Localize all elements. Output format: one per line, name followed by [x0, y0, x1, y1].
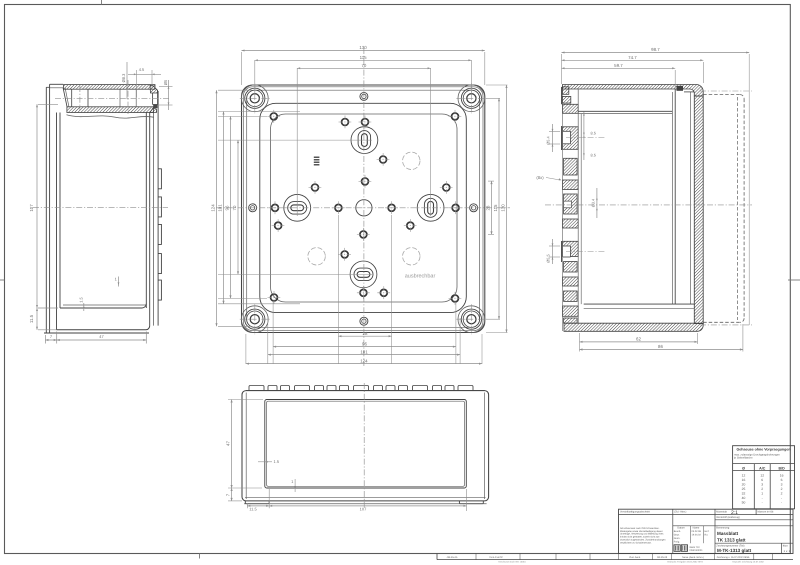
svg-text:40: 40 — [742, 496, 746, 500]
svg-text:druecklich zugestanden. Zuwide: druecklich zugestanden. Zuwiderhandlunge… — [620, 538, 666, 541]
svg-text:B/D: B/D — [778, 466, 785, 470]
svg-text:verpflichten zu Schadenersatz.: verpflichten zu Schadenersatz. — [620, 541, 652, 544]
svg-text:74.7: 74.7 — [628, 55, 637, 60]
svg-text:1.5: 1.5 — [78, 296, 83, 302]
svg-text:(Zul.-Abw.): (Zul.-Abw.) — [674, 511, 686, 514]
svg-text:JW-45x15: JW-45x15 — [657, 556, 668, 559]
svg-text:12: 12 — [760, 473, 764, 477]
svg-text:Zeichnungsnummer (Teil): Zeichnungsnummer (Teil) — [716, 544, 744, 547]
svg-text:4.5: 4.5 — [139, 67, 145, 72]
svg-text:19.04.02: 19.04.02 — [692, 534, 702, 537]
svg-text:124: 124 — [360, 358, 368, 363]
svg-text:16: 16 — [780, 473, 784, 477]
svg-text:2: 2 — [781, 492, 783, 496]
svg-text:62: 62 — [636, 337, 641, 342]
svg-text:Zeichnung v. 16.07.2002 08/56: Zeichnung v. 16.07.2002 08/56 — [717, 556, 750, 559]
svg-text:Massen in t/St: Massen in t/St — [758, 511, 774, 514]
svg-text:Blatt: Blatt — [783, 544, 788, 547]
svg-text:1: 1 — [761, 492, 763, 496]
svg-text:47: 47 — [99, 334, 104, 339]
svg-text:107: 107 — [29, 204, 34, 212]
svg-text:-: - — [762, 501, 763, 505]
svg-text:115: 115 — [360, 55, 368, 60]
svg-text:20: 20 — [742, 482, 746, 486]
svg-text:JW-45x15: JW-45x15 — [447, 556, 458, 559]
svg-text:je Seitenflaeche: je Seitenflaeche — [733, 457, 753, 460]
svg-text:Vervielfaeltigungsabschnitt: Vervielfaeltigungsabschnitt — [620, 511, 650, 514]
svg-text:Datum: Datum — [677, 527, 684, 530]
svg-text:2: 2 — [781, 487, 783, 491]
svg-text:32: 32 — [742, 492, 746, 496]
svg-text:Massblatt: Massblatt — [717, 531, 739, 536]
svg-text:3: 3 — [781, 482, 783, 486]
svg-text:Werkstoff (Halbzeug): Werkstoff (Halbzeug) — [716, 516, 740, 519]
svg-text:98.7: 98.7 — [651, 47, 660, 52]
svg-text:12: 12 — [742, 473, 746, 477]
svg-text:Ø: Ø — [742, 466, 745, 470]
svg-text:50: 50 — [742, 501, 746, 505]
svg-text:Ø3.4: Ø3.4 — [590, 198, 595, 207]
svg-text:M-TK-1313 glatt: M-TK-1313 glatt — [717, 548, 752, 553]
svg-text:Ø5.4: Ø5.4 — [546, 135, 551, 144]
svg-text:Inhalts nicht gestattet, sowei: Inhalts nicht gestattet, soweit nicht au… — [620, 536, 660, 539]
svg-text:-: - — [781, 496, 782, 500]
svg-text:-: - — [762, 496, 763, 500]
svg-text:Weitergabe sowie Vervielfaelti: Weitergabe sowie Vervielfaeltigung diese… — [620, 530, 663, 533]
svg-text:96: 96 — [362, 341, 367, 346]
svg-text:Gehaeuse ohne Vorpraegungen: Gehaeuse ohne Vorpraegungen — [736, 448, 790, 452]
svg-text:28: 28 — [486, 205, 491, 210]
svg-text:107: 107 — [360, 506, 367, 511]
svg-text:96: 96 — [225, 205, 230, 210]
svg-text:130: 130 — [359, 45, 367, 50]
svg-text:70: 70 — [232, 205, 237, 210]
svg-text:Geschuetzt nach ISO 16016: Geschuetzt nach ISO 16016 — [498, 561, 526, 564]
svg-text:3: 3 — [761, 482, 763, 486]
svg-text:Freig.: Freig. — [674, 540, 680, 543]
svg-text:TK 1313 glatt: TK 1313 glatt — [717, 538, 746, 543]
svg-text:1.5: 1.5 — [274, 459, 280, 464]
svg-text:Name: Name — [693, 527, 700, 530]
svg-text:130: 130 — [501, 204, 506, 212]
svg-text:Ø8.3: Ø8.3 — [121, 73, 126, 82]
svg-text:28: 28 — [363, 331, 368, 336]
svg-text:A/C: A/C — [759, 466, 766, 470]
svg-text:0030 R0001: 0030 R0001 — [690, 549, 704, 552]
svg-text:Geprueft: Zeichnung 16.07.2002: Geprueft: Zeichnung 16.07.2002 — [732, 561, 764, 564]
svg-text:Unterlage, Verwertung und Mitt: Unterlage, Verwertung und Mitteilung ihr… — [620, 533, 664, 536]
svg-text:Ø5: Ø5 — [163, 79, 168, 85]
svg-text:Schutzvermerk nach DIN 34 beac: Schutzvermerk nach DIN 34 beachten. — [620, 527, 660, 530]
svg-text:15.8.4 HeTP: 15.8.4 HeTP — [489, 556, 503, 559]
svg-text:115: 115 — [493, 204, 498, 212]
svg-text:-: - — [781, 501, 782, 505]
svg-text:Benennung:: Benennung: — [716, 527, 730, 530]
svg-text:6: 6 — [761, 478, 763, 482]
svg-text:86: 86 — [658, 344, 663, 349]
svg-text:Massstab: Massstab — [716, 511, 727, 514]
svg-text:70: 70 — [361, 63, 366, 68]
svg-text:11.5: 11.5 — [249, 506, 257, 511]
svg-text:8.5: 8.5 — [591, 131, 596, 136]
svg-text:2: 2 — [761, 487, 763, 491]
svg-text:1 v. 1: 1 v. 1 — [784, 549, 791, 553]
svg-text:8.5: 8.5 — [591, 153, 596, 158]
svg-text:59.7: 59.7 — [614, 63, 623, 68]
svg-text:11.5: 11.5 — [29, 314, 34, 323]
svg-text:101: 101 — [360, 349, 368, 354]
svg-text:101: 101 — [218, 204, 223, 212]
svg-text:Gedruckt: Freigabe 19.04.2002: Gedruckt: Freigabe 19.04.2002 GHG — [667, 561, 703, 564]
svg-text:Name (Aend.-Schm.): Name (Aend.-Schm.) — [682, 556, 704, 559]
svg-text:6: 6 — [781, 478, 783, 482]
svg-text:124: 124 — [211, 204, 216, 212]
svg-text:Ø5.5: Ø5.5 — [546, 254, 551, 262]
svg-text:2:1: 2:1 — [731, 510, 738, 516]
svg-text:16: 16 — [742, 478, 746, 482]
svg-text:Zust. Aend.: Zust. Aend. — [629, 556, 641, 559]
svg-text:25: 25 — [742, 487, 746, 491]
svg-text:(8x): (8x) — [536, 175, 544, 180]
svg-text:ausbrechbar: ausbrechbar — [405, 273, 436, 279]
svg-text:47: 47 — [226, 441, 231, 446]
